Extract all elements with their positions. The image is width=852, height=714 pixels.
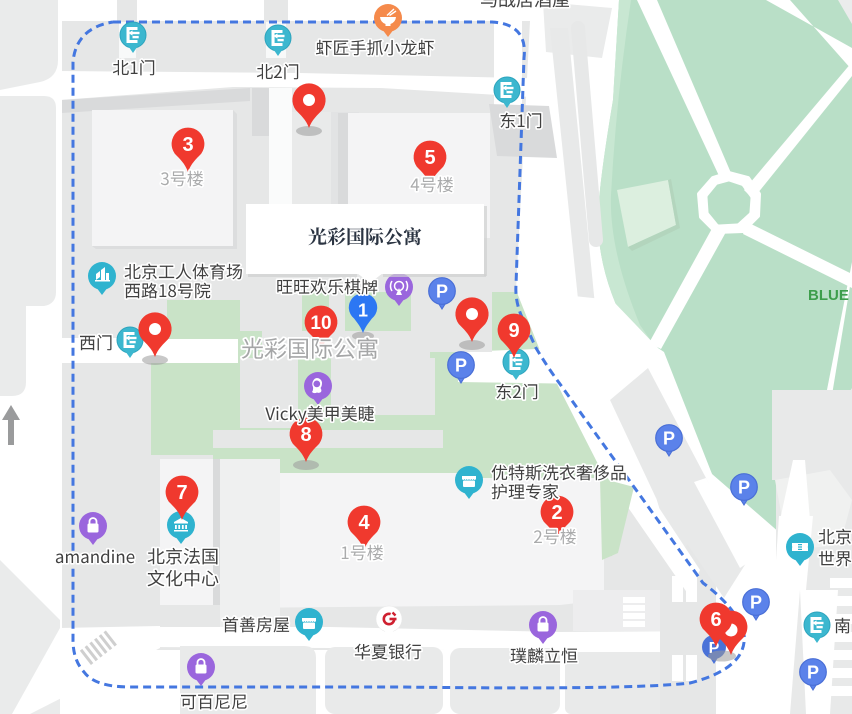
svg-text:3: 3 [182,134,193,156]
svg-text:BLUE: BLUE [808,287,849,304]
svg-text:P: P [750,593,762,613]
svg-text:P: P [663,429,675,449]
svg-text:P: P [455,356,467,376]
svg-text:P: P [436,282,448,302]
svg-text:P: P [807,663,819,683]
svg-text:8: 8 [300,424,311,446]
svg-text:9: 9 [508,320,519,342]
svg-text:1: 1 [358,301,368,321]
svg-text:4: 4 [358,512,370,534]
svg-text:P: P [738,478,750,498]
svg-text:2: 2 [551,502,562,524]
svg-text:5: 5 [424,147,435,169]
svg-text:7: 7 [176,482,187,504]
svg-text:6: 6 [710,609,721,631]
svg-text:10: 10 [310,313,331,334]
